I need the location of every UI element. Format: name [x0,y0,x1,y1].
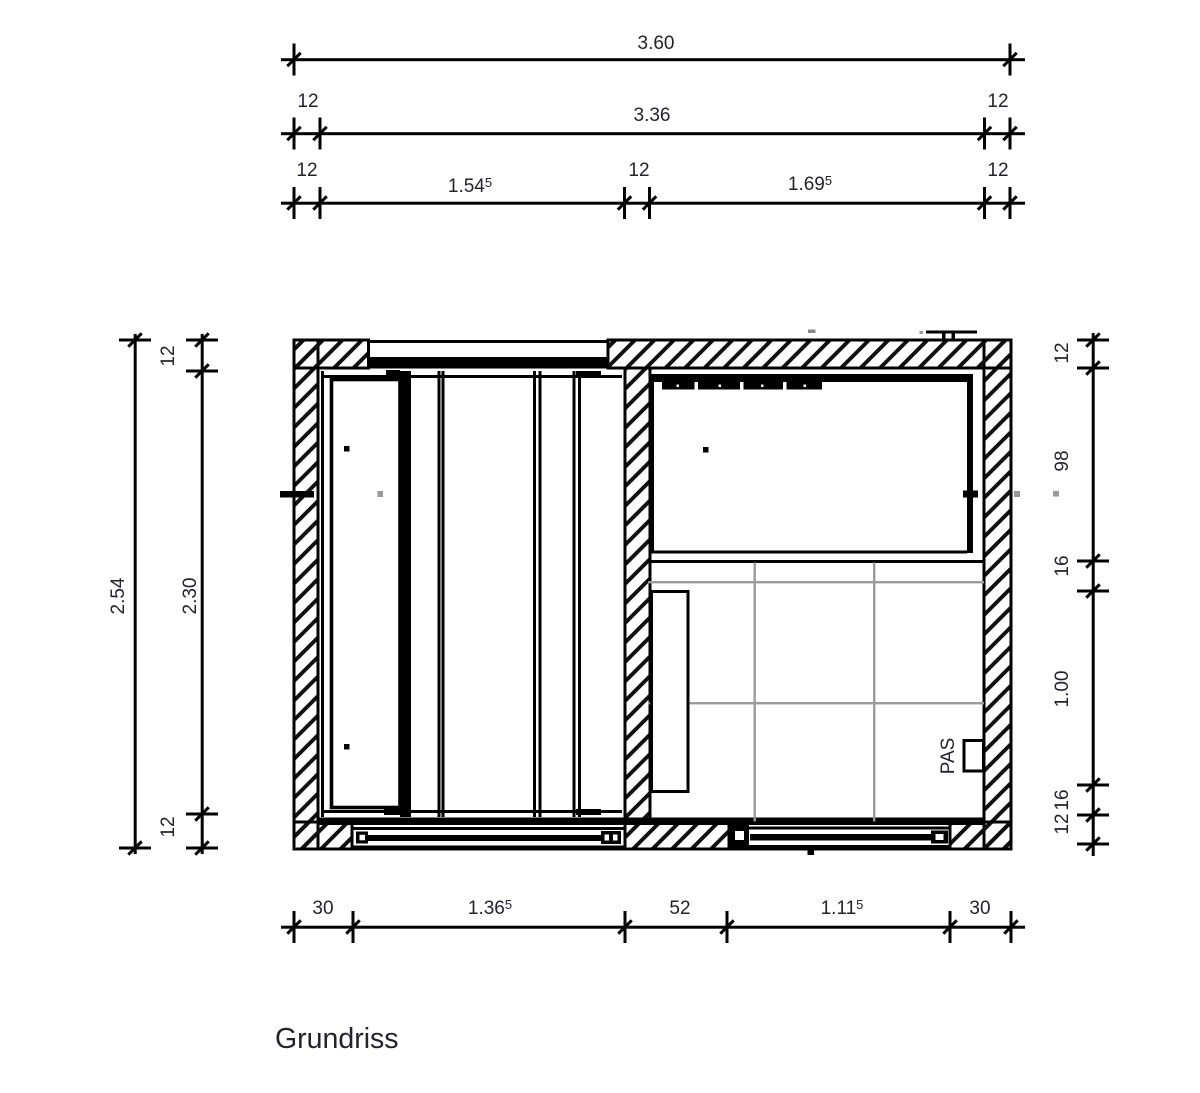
svg-text:12: 12 [296,160,317,181]
svg-text:52: 52 [669,898,690,919]
svg-text:2.54: 2.54 [108,577,129,614]
svg-text:1.545: 1.545 [448,175,492,197]
svg-text:1.365: 1.365 [468,897,512,919]
svg-text:16: 16 [1052,789,1073,810]
svg-text:12: 12 [158,345,179,366]
svg-text:12: 12 [1052,342,1073,363]
svg-text:3.60: 3.60 [638,33,675,54]
svg-text:16: 16 [1052,555,1073,576]
svg-text:98: 98 [1052,450,1073,471]
svg-text:3.36: 3.36 [634,105,671,126]
svg-text:2.30: 2.30 [180,578,201,615]
svg-text:Grundriss: Grundriss [275,1023,399,1055]
svg-text:12: 12 [297,91,318,112]
svg-text:12: 12 [158,816,179,837]
svg-text:12: 12 [987,160,1008,181]
svg-text:30: 30 [312,898,333,919]
svg-text:12: 12 [1052,813,1073,834]
svg-text:1.115: 1.115 [821,897,864,919]
svg-text:12: 12 [987,91,1008,112]
svg-text:30: 30 [969,898,990,919]
svg-text:1.695: 1.695 [788,173,832,195]
svg-text:PAS: PAS [938,738,959,775]
svg-text:1.00: 1.00 [1052,671,1073,708]
svg-text:12: 12 [628,160,649,181]
